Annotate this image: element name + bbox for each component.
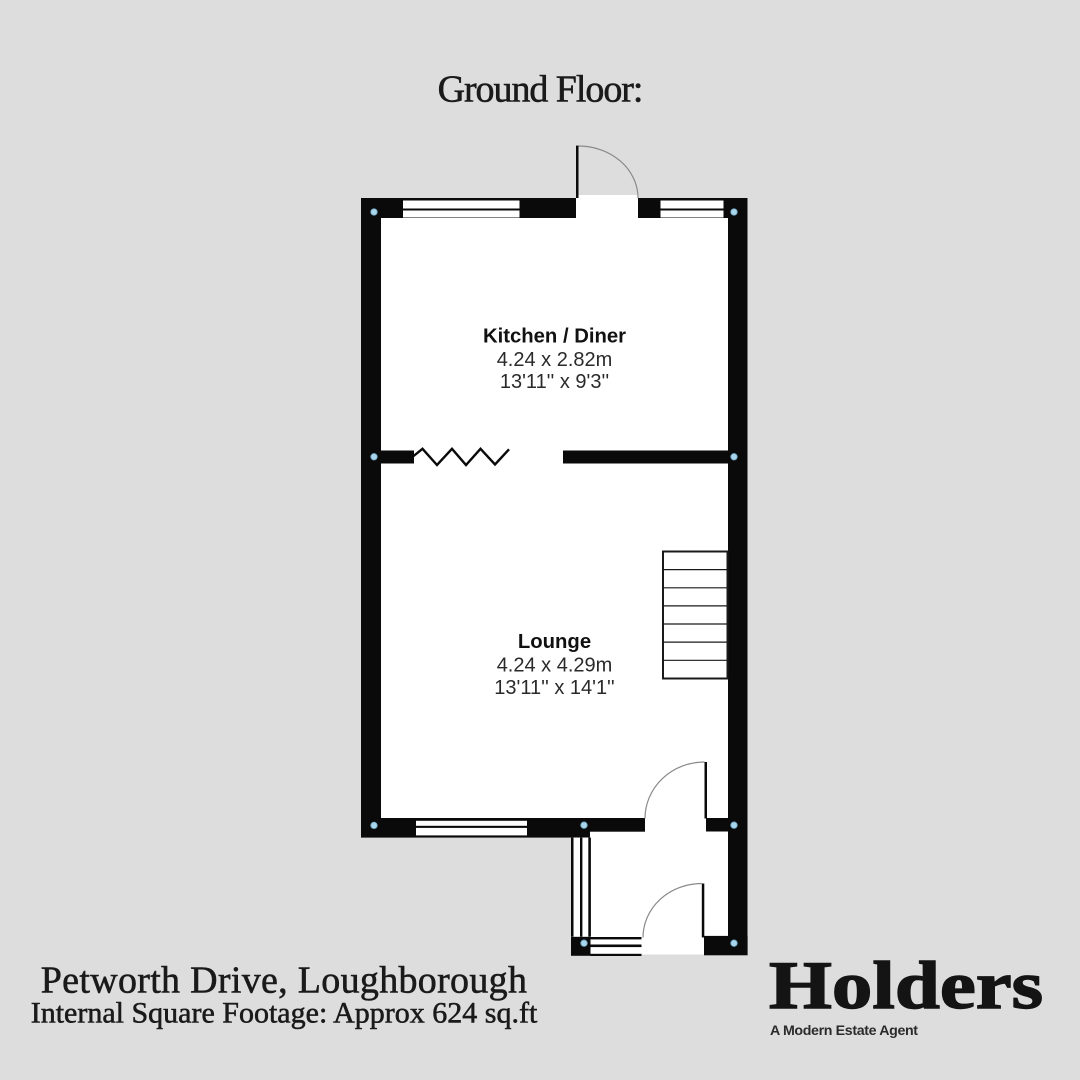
- svg-text:Internal Square Footage: Appro: Internal Square Footage: Approx 624 sq.f…: [31, 997, 538, 1030]
- svg-text:4.24 x 2.82m: 4.24 x 2.82m: [497, 349, 613, 371]
- svg-text:13'11'' x 14'1'': 13'11'' x 14'1'': [494, 677, 614, 699]
- svg-text:4.24 x 4.29m: 4.24 x 4.29m: [497, 655, 613, 677]
- svg-text:Lounge: Lounge: [518, 631, 591, 653]
- svg-text:Kitchen / Diner: Kitchen / Diner: [483, 326, 626, 348]
- svg-text:Petworth Drive, Loughborough: Petworth Drive, Loughborough: [41, 960, 528, 1002]
- svg-text:Holders: Holders: [769, 948, 1043, 1024]
- svg-text:Ground Floor:: Ground Floor:: [438, 69, 643, 111]
- svg-text:A Modern Estate Agent: A Modern Estate Agent: [770, 1023, 918, 1039]
- svg-text:13'11'' x 9'3'': 13'11'' x 9'3'': [500, 371, 609, 393]
